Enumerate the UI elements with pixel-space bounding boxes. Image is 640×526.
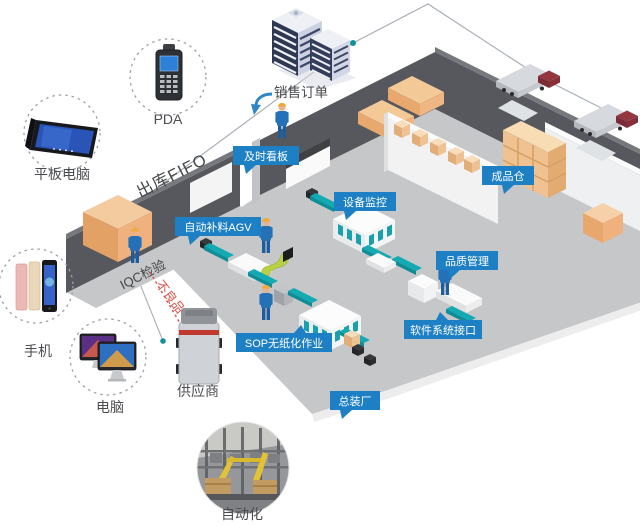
device-pda: PDA [130, 39, 206, 127]
phone-label: 手机 [24, 343, 52, 359]
connector-node-dot [350, 40, 356, 46]
computer-label: 电脑 [96, 399, 124, 415]
tag-equipment-monitoring-text: 设备监控 [343, 195, 387, 209]
supplier-truck-icon [176, 308, 222, 384]
tag-sop-paperless-text: SOP无纸化作业 [245, 336, 323, 350]
device-phone: 手机 [0, 249, 73, 359]
office-building-icon [272, 8, 356, 90]
phone-icon [16, 260, 57, 312]
automation-label: 自动化 [221, 506, 263, 522]
automation-photo [197, 422, 289, 514]
tag-final-assembly-plant: 总装厂 [330, 391, 380, 419]
smart-factory-diagram: 销售订单 [0, 0, 640, 526]
tag-jit-board-text: 及时看板 [244, 149, 288, 163]
supplier-node-dot [160, 338, 166, 344]
device-tablet: 平板电脑 [24, 95, 100, 182]
pda-label: PDA [154, 111, 183, 127]
supplier-label: 供应商 [177, 383, 219, 399]
tag-software-system-interface-text: 软件系统接口 [410, 323, 476, 337]
tag-final-assembly-plant-text: 总装厂 [339, 394, 372, 408]
diagram-canvas: 销售订单 [0, 0, 640, 526]
tag-finished-goods-warehouse-text: 成品仓 [492, 169, 525, 183]
computer-icon [80, 334, 136, 382]
tablet-label: 平板电脑 [34, 166, 90, 182]
device-computer: 电脑 [70, 319, 146, 415]
tablet-icon [25, 118, 98, 158]
tag-auto-replenish-agv-text: 自动补料AGV [184, 220, 252, 234]
sales-order-label: 销售订单 [274, 85, 328, 100]
pda-icon [156, 44, 182, 100]
tag-quality-management-text: 品质管理 [445, 254, 489, 268]
factory [66, 47, 640, 422]
